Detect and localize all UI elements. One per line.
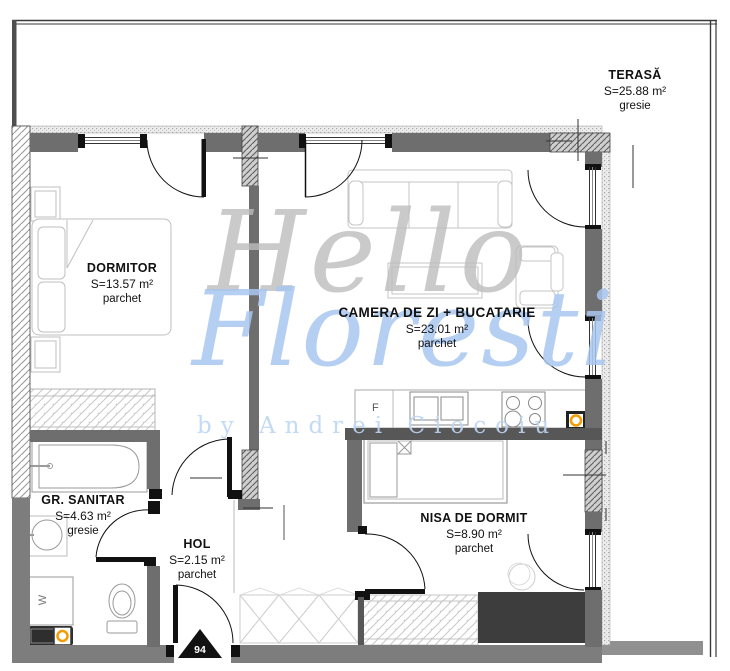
entrance-number: 94 — [194, 644, 206, 656]
room-area: S=23.01 m² — [338, 322, 535, 337]
room-floor: gresie — [604, 99, 666, 113]
right-wall — [585, 152, 602, 647]
room-label-dormitor: DORMITOR S=13.57 m² parchet — [87, 261, 157, 306]
room-name: TERASĂ — [604, 68, 666, 84]
room-area: S=13.57 m² — [87, 277, 157, 292]
top-wall — [30, 126, 610, 186]
room-area: S=4.63 m² — [41, 509, 125, 524]
room-label-nisa: NISA DE DORMIT S=8.90 m² parchet — [420, 511, 527, 556]
floor-plan: Hello Floresti by Andrei Ciocoiu DORMITO… — [0, 0, 730, 671]
room-label-terasa: TERASĂ S=25.88 m² gresie — [604, 68, 666, 113]
fixtures-bathroom — [24, 440, 147, 646]
room-floor: parchet — [87, 292, 157, 306]
furniture-wardrobe-x — [240, 588, 358, 643]
fixture-boiler — [566, 411, 586, 430]
room-area: S=25.88 m² — [604, 84, 666, 99]
fridge-label: F — [372, 402, 379, 414]
furniture-living — [348, 170, 563, 308]
room-name: HOL — [169, 537, 225, 553]
room-label-gr-sanitar: GR. SANITAR S=4.63 m² gresie — [41, 493, 125, 538]
room-label-living: CAMERA DE ZI + BUCATARIE S=23.01 m² parc… — [338, 305, 535, 351]
room-area: S=8.90 m² — [420, 527, 527, 542]
room-name: NISA DE DORMIT — [420, 511, 527, 527]
room-floor: parchet — [338, 337, 535, 351]
room-name: DORMITOR — [87, 261, 157, 277]
washer-label: W — [37, 595, 49, 605]
room-floor: parchet — [169, 568, 225, 582]
room-floor: gresie — [41, 524, 125, 538]
room-floor: parchet — [420, 542, 527, 556]
furniture-dormitor — [30, 187, 171, 433]
room-area: S=2.15 m² — [169, 553, 225, 568]
room-label-hol: HOL S=2.15 m² parchet — [169, 537, 225, 582]
insulation-strips — [12, 126, 610, 645]
furniture-kitchen — [355, 390, 587, 428]
room-name: CAMERA DE ZI + BUCATARIE — [338, 305, 535, 322]
room-name: GR. SANITAR — [41, 493, 125, 509]
